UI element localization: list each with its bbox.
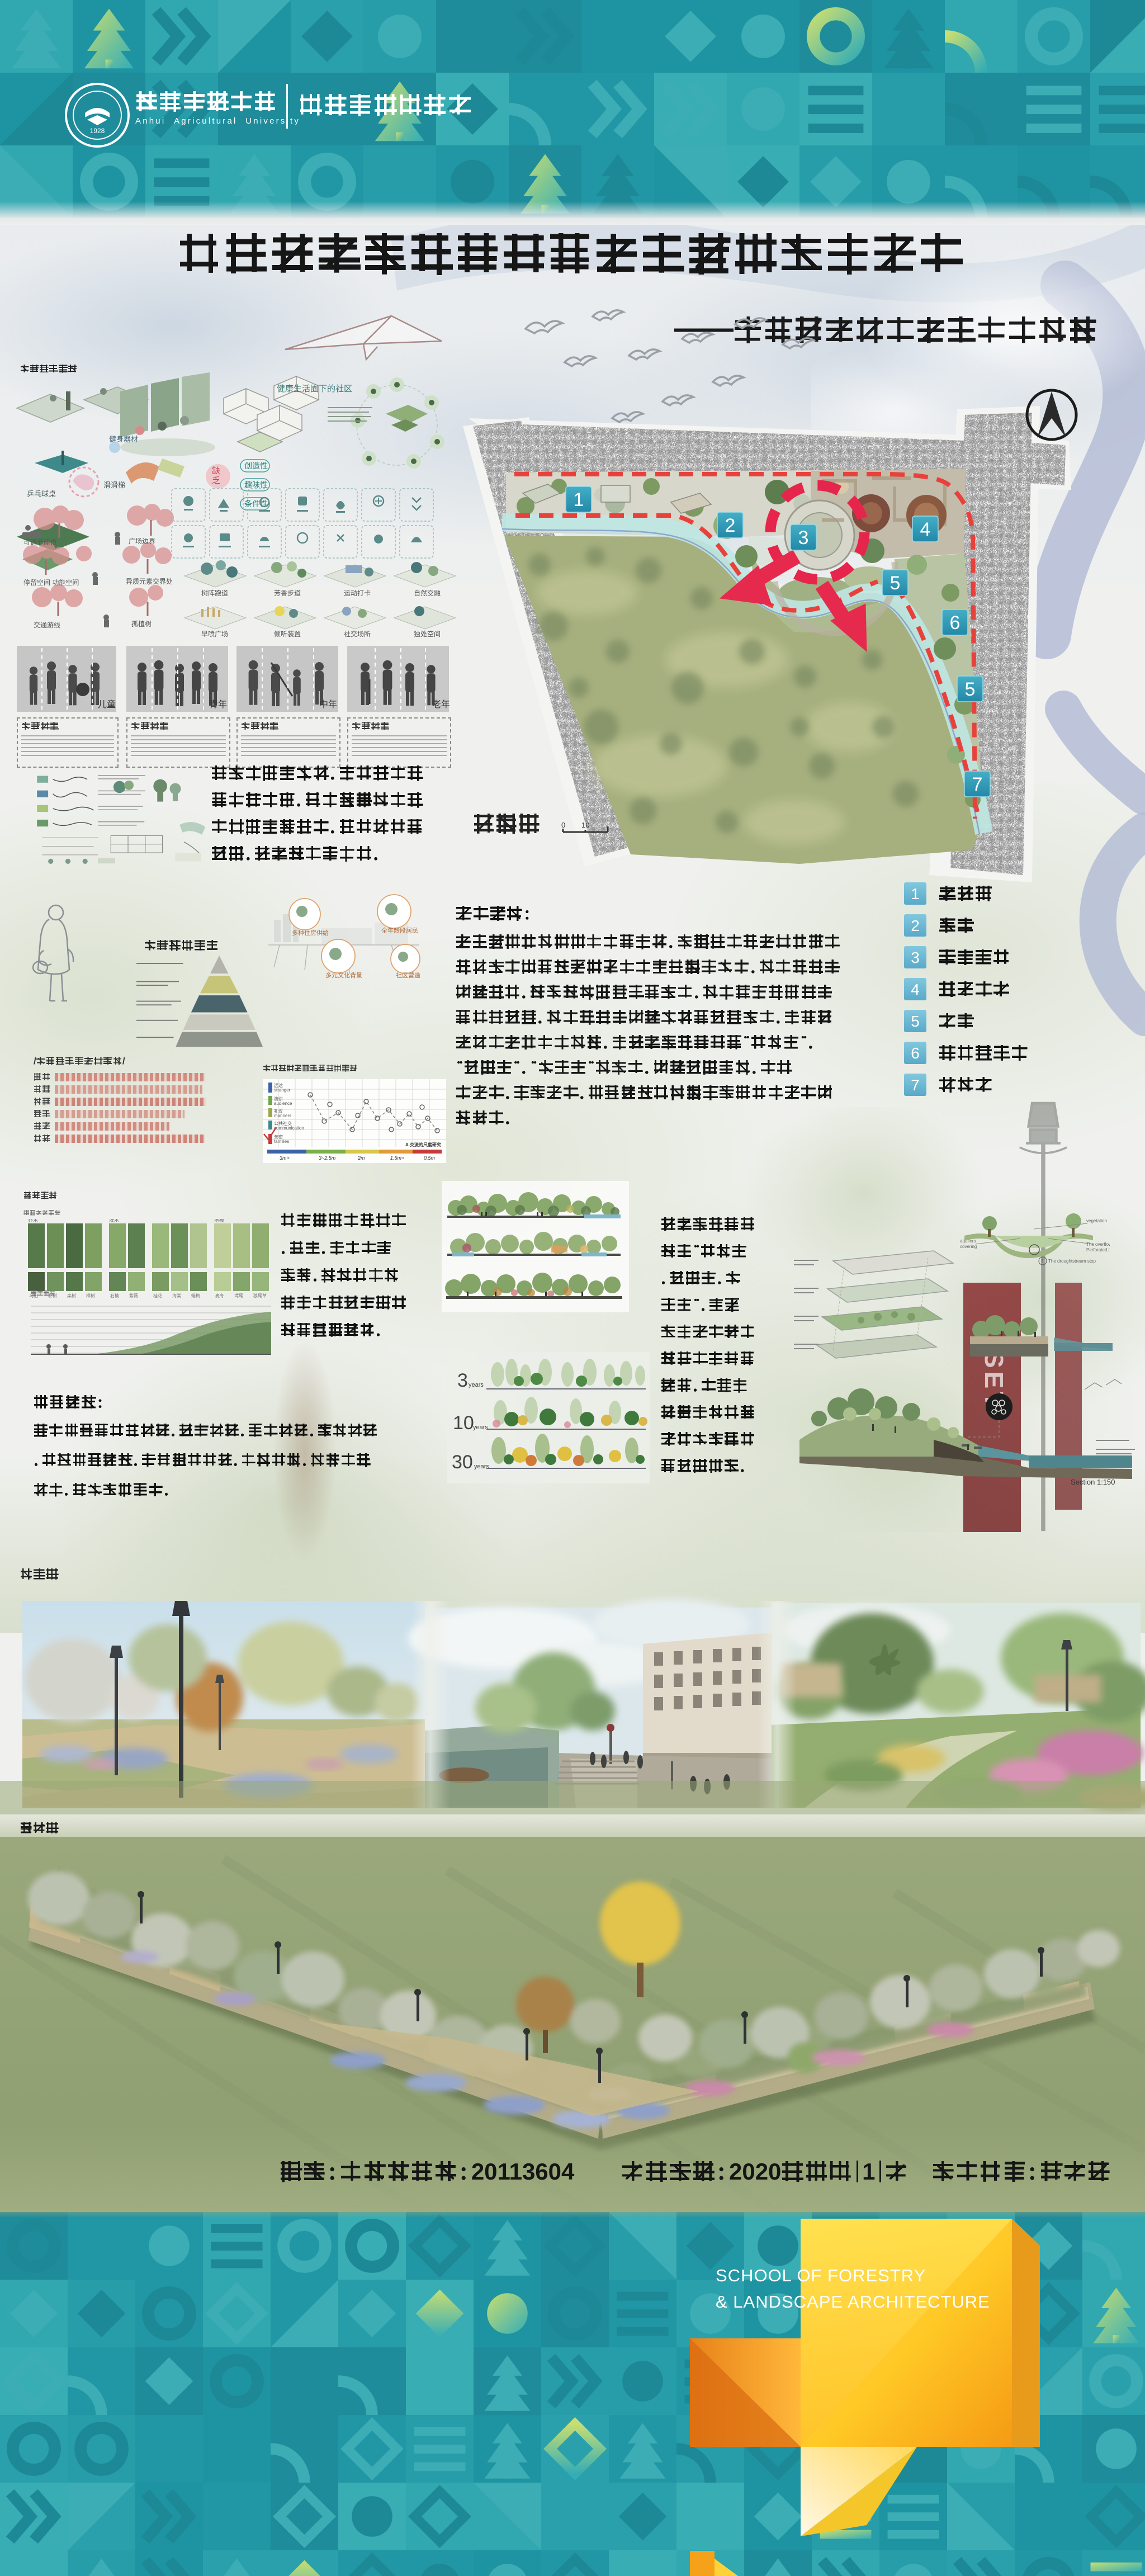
svg-text:2: 2 <box>725 515 736 536</box>
svg-text:0: 0 <box>561 822 565 829</box>
svg-text:Section 1:150: Section 1:150 <box>1071 1478 1115 1486</box>
svg-text:停留空间 功能空间: 停留空间 功能空间 <box>23 578 79 587</box>
svg-text:独处空间: 独处空间 <box>414 630 441 637</box>
svg-text:健身器材: 健身器材 <box>109 435 138 443</box>
svg-text:communication: communication <box>274 1126 304 1131</box>
svg-text:全年龄段居民: 全年龄段居民 <box>381 927 418 934</box>
svg-text:儿童: 儿童 <box>98 699 116 710</box>
svg-text:0.5m: 0.5m <box>424 1155 436 1161</box>
svg-text:A.交流的尺度研究: A.交流的尺度研究 <box>405 1142 441 1147</box>
svg-text:covering: covering <box>960 1244 977 1249</box>
svg-text:孤植树: 孤植树 <box>131 620 152 628</box>
svg-text:乏: 乏 <box>212 476 220 485</box>
svg-text:社交场所: 社交场所 <box>344 630 371 637</box>
svg-text:3: 3 <box>1041 1259 1044 1264</box>
svg-text:The overflow tube: The overflow tube <box>1086 1242 1110 1247</box>
svg-text:栾树: 栾树 <box>67 1293 76 1298</box>
svg-text:3: 3 <box>911 949 920 966</box>
svg-text:石楠: 石楠 <box>110 1293 119 1298</box>
svg-text:青年: 青年 <box>209 699 227 710</box>
svg-text:1: 1 <box>574 489 584 511</box>
svg-text:10: 10 <box>581 822 589 829</box>
svg-text:years: years <box>474 1463 489 1470</box>
svg-text:创造性: 创造性 <box>244 461 268 470</box>
svg-text:5: 5 <box>890 573 901 594</box>
svg-text:中年: 中年 <box>319 699 337 710</box>
svg-text:30: 30 <box>452 1452 473 1473</box>
svg-text:缺: 缺 <box>212 466 220 476</box>
svg-text:运动打卡: 运动打卡 <box>344 589 371 597</box>
svg-text:6: 6 <box>911 1044 920 1062</box>
svg-text:健康生活圈下的社区: 健康生活圈下的社区 <box>277 384 352 394</box>
svg-text:7: 7 <box>911 1076 920 1094</box>
svg-text:4: 4 <box>920 519 931 540</box>
svg-text:狼尾草: 狼尾草 <box>253 1293 267 1298</box>
svg-text:异质元素交界处: 异质元素交界处 <box>126 577 173 585</box>
svg-text:years: years <box>473 1424 488 1431</box>
svg-text:1: 1 <box>911 885 920 902</box>
svg-text:vegetation: vegetation <box>1086 1218 1107 1223</box>
svg-text:families: families <box>274 1139 289 1144</box>
svg-text:榉树: 榉树 <box>86 1293 95 1298</box>
svg-text:滑滑梯: 滑滑梯 <box>103 481 125 489</box>
svg-text:多种住房供给: 多种住房供给 <box>292 929 329 937</box>
svg-text:芳香步道: 芳香步道 <box>274 589 301 597</box>
svg-text:7: 7 <box>972 774 983 795</box>
svg-text:6: 6 <box>950 612 961 634</box>
svg-text:1.5m>: 1.5m> <box>390 1155 404 1161</box>
svg-text:5: 5 <box>911 1013 920 1030</box>
svg-text:2m: 2m <box>357 1155 365 1161</box>
svg-text:The droughtstream stop: The droughtstream stop <box>1048 1259 1096 1264</box>
svg-text:乔木: 乔木 <box>28 1219 38 1223</box>
svg-text:自然交融: 自然交融 <box>414 589 441 597</box>
svg-text:早喷广场: 早喷广场 <box>201 630 228 637</box>
svg-text:1928: 1928 <box>90 127 105 135</box>
svg-text:蜡梅: 蜡梅 <box>191 1293 200 1298</box>
svg-text:交通游线: 交通游线 <box>34 621 60 629</box>
svg-text:广场边界: 广场边界 <box>129 537 155 545</box>
svg-text:manners: manners <box>274 1113 291 1118</box>
svg-text:乒乓球桌: 乒乓球桌 <box>27 490 56 498</box>
svg-text:audience: audience <box>274 1101 292 1106</box>
svg-text:灌木: 灌木 <box>109 1219 119 1223</box>
svg-text:桂花: 桂花 <box>153 1293 162 1298</box>
svg-text:4: 4 <box>911 981 920 998</box>
svg-text:3m>: 3m> <box>280 1155 290 1161</box>
svg-text:可调节座位: 可调节座位 <box>23 538 57 546</box>
svg-text:老年: 老年 <box>432 699 450 710</box>
svg-text:5: 5 <box>965 679 976 700</box>
svg-text:树阵跑道: 树阵跑道 <box>201 589 228 597</box>
svg-text:海棠: 海棠 <box>172 1293 181 1298</box>
svg-text:stranger: stranger <box>274 1088 291 1093</box>
svg-text:2: 2 <box>911 917 920 934</box>
svg-text:地被: 地被 <box>214 1219 224 1223</box>
svg-text:3: 3 <box>457 1370 468 1391</box>
svg-text:倾听装置: 倾听装置 <box>274 630 301 637</box>
svg-text:社区营造: 社区营造 <box>396 971 420 979</box>
svg-text:years: years <box>469 1382 484 1388</box>
svg-text:3: 3 <box>798 527 809 549</box>
svg-text:Perforated tube: Perforated tube <box>1086 1247 1110 1252</box>
svg-text:10: 10 <box>453 1412 474 1434</box>
svg-text:麦冬: 麦冬 <box>215 1293 224 1298</box>
svg-text:aquifers: aquifers <box>960 1239 976 1244</box>
svg-text:3~2.5m: 3~2.5m <box>319 1155 336 1161</box>
svg-text:多元文化背景: 多元文化背景 <box>325 971 362 979</box>
svg-text:鸢尾: 鸢尾 <box>234 1293 243 1298</box>
svg-text:紫薇: 紫薇 <box>129 1293 138 1298</box>
